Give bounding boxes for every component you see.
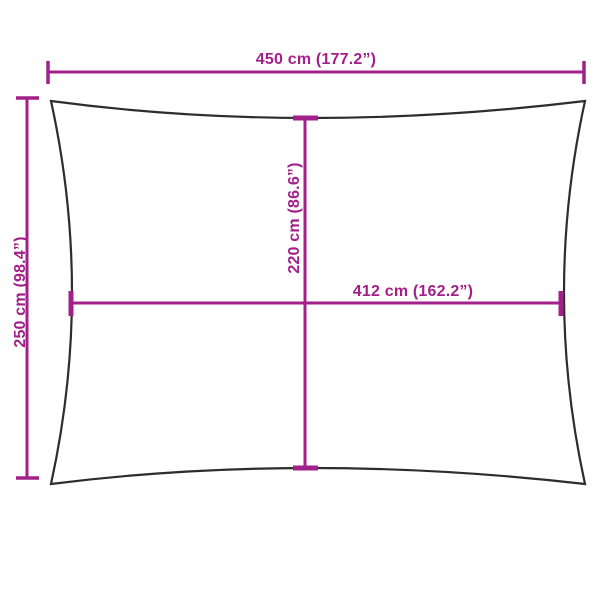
dimension-width-total: 450 cm (177.2”) [48, 51, 584, 84]
dimension-height-total: 250 cm (98.4”) [12, 98, 39, 478]
width-total-label: 450 cm (177.2”) [256, 51, 376, 68]
dimension-height-inner: 220 cm (86.6”) [286, 118, 318, 468]
width-inner-label: 412 cm (162.2”) [353, 283, 473, 300]
height-inner-label: 220 cm (86.6”) [286, 162, 303, 273]
product-dimension-diagram: 450 cm (177.2”) 250 cm (98.4”) 220 cm (8… [0, 0, 600, 600]
shade-sail-outline [51, 101, 585, 484]
height-total-label: 250 cm (98.4”) [12, 236, 29, 347]
dimension-width-inner: 412 cm (162.2”) [71, 283, 561, 316]
diagram-canvas: 450 cm (177.2”) 250 cm (98.4”) 220 cm (8… [0, 0, 600, 600]
